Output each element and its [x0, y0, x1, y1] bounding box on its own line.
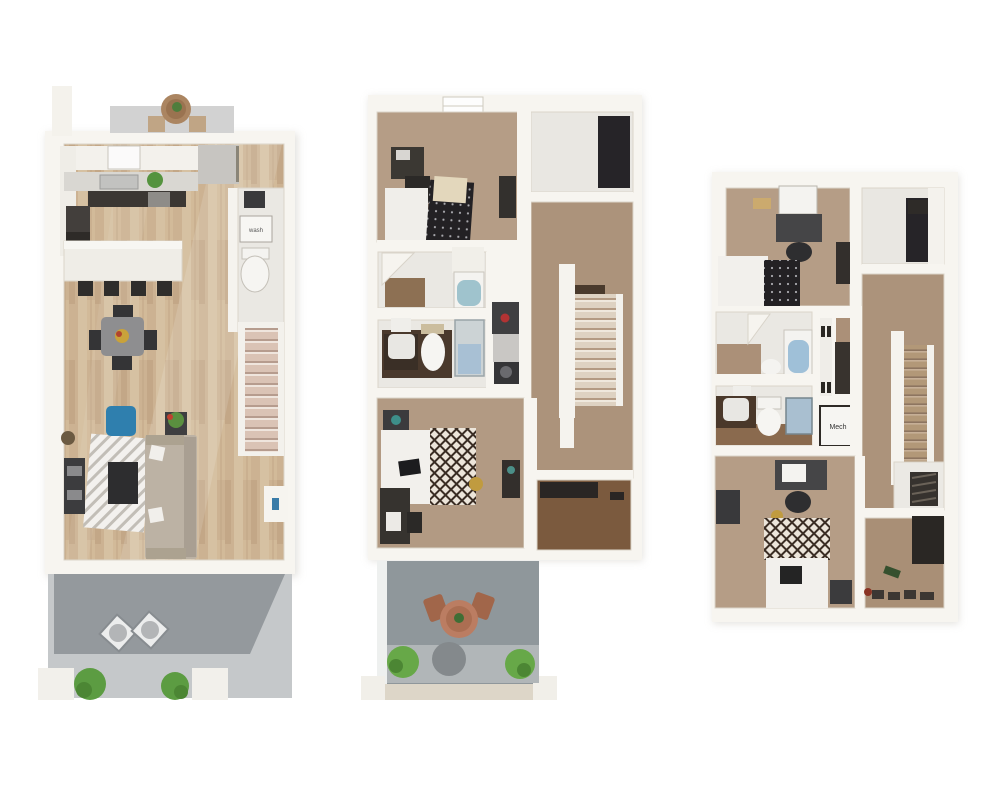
- svg-text:Mech: Mech: [829, 424, 846, 431]
- svg-text:wash: wash: [248, 228, 263, 234]
